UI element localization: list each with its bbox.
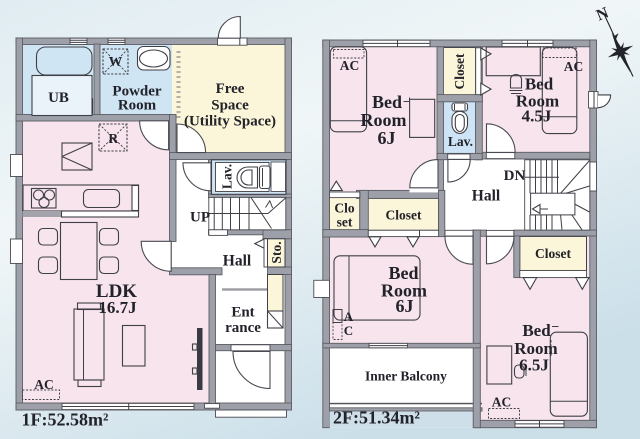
svg-text:Lav.: Lav. [448,134,473,149]
svg-text:1F:52.58m²: 1F:52.58m² [22,410,109,430]
svg-text:DN: DN [504,168,526,184]
svg-text:Bed: Bed [372,92,402,112]
svg-text:set: set [337,215,353,230]
svg-text:Closet: Closet [535,246,571,261]
svg-text:AC: AC [34,377,54,392]
svg-text:Ent: Ent [231,305,254,321]
svg-text:Room: Room [361,110,407,130]
svg-text:R: R [108,131,118,146]
svg-text:Bed: Bed [522,321,551,340]
svg-text:AC: AC [564,59,584,74]
svg-text:Clo: Clo [334,201,355,216]
svg-text:AC: AC [492,395,512,410]
svg-text:Space: Space [211,98,249,114]
svg-text:UP: UP [190,210,210,226]
svg-text:Hall: Hall [223,253,252,270]
svg-text:Inner Balcony: Inner Balcony [365,369,447,384]
svg-text:(Utility Space): (Utility Space) [184,114,276,130]
svg-text:Closet: Closet [452,53,467,89]
svg-text:Hall: Hall [472,188,501,205]
svg-text:16.7J: 16.7J [98,298,137,317]
svg-text:C: C [344,323,353,338]
svg-text:rance: rance [225,320,261,336]
svg-text:A: A [344,309,354,324]
svg-text:2F:51.34m²: 2F:51.34m² [333,408,420,428]
svg-text:Free: Free [216,81,245,97]
svg-text:AC: AC [340,58,360,73]
svg-text:Lav.: Lav. [220,164,235,189]
svg-text:Closet: Closet [386,208,422,223]
svg-text:Sto.: Sto. [269,241,284,263]
svg-text:Room: Room [118,98,157,114]
svg-text:4.5J: 4.5J [522,107,552,126]
svg-text:W: W [109,54,123,69]
svg-text:6J: 6J [396,296,414,316]
svg-text:6.5J: 6.5J [519,356,549,375]
svg-text:6J: 6J [378,128,396,148]
svg-text:UB: UB [48,90,69,106]
